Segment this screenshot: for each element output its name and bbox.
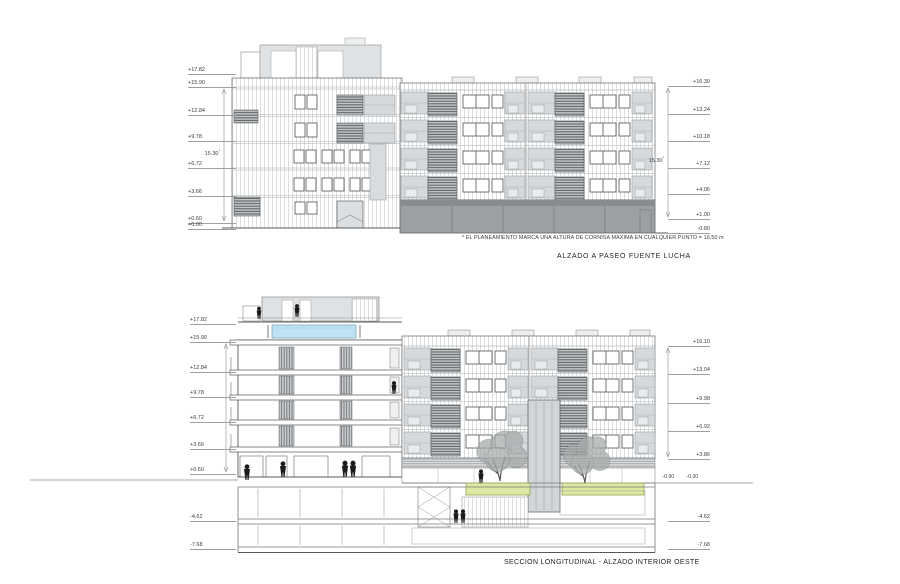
rooftop-pool xyxy=(272,325,356,338)
elevation-title: ALZADO A PASEO FUENTE LUCHA xyxy=(557,253,691,260)
green-roof-left xyxy=(466,483,530,495)
level-label: +9.78 xyxy=(190,390,236,398)
section-ground-label-right: -0.30 xyxy=(676,474,698,480)
section-levels-right: +16.10+13.04+9.98+6.92+3.86-4.62-7.68 xyxy=(668,0,710,584)
level-label: +3.86 xyxy=(668,452,710,460)
section-title: SECCION LONGITUDINAL - ALZADO INTERIOR O… xyxy=(504,559,700,566)
level-label: +15.90 xyxy=(190,335,236,343)
section-right-building xyxy=(402,330,655,527)
level-label: +16.10 xyxy=(668,339,710,347)
section-roof xyxy=(238,297,402,338)
planning-footnote: * EL PLANEAMIENTO MARCA UNA ALTURA DE CO… xyxy=(462,235,724,241)
elevation-roof-volumes xyxy=(241,38,381,78)
elevation-drawing xyxy=(222,38,670,233)
level-label: +6.92 xyxy=(668,424,710,432)
section-ground-label-left: -0.90 xyxy=(652,474,674,480)
garage-door xyxy=(337,201,363,228)
level-label: +0.60 xyxy=(190,467,236,475)
level-label: -7.68 xyxy=(190,542,236,550)
level-label: +13.04 xyxy=(668,367,710,375)
level-label: +9.98 xyxy=(668,396,710,404)
ground-floor-lobby xyxy=(240,456,390,477)
section-levels-left: +17.82+15.90+12.84+9.78+6.72+3.66+0.60-4… xyxy=(190,0,236,584)
level-label: +12.84 xyxy=(190,365,236,373)
level-label: -4.62 xyxy=(668,514,710,522)
level-label: +17.82 xyxy=(190,317,236,325)
parking-ramp xyxy=(418,487,450,527)
level-label: +6.72 xyxy=(190,415,236,423)
section-left-building xyxy=(230,340,404,477)
level-label: -7.68 xyxy=(668,542,710,550)
architectural-drawing-sheet: +17.82+15.90+12.84+9.78+6.72+3.66+0.60+0… xyxy=(0,0,900,584)
elevation-height-dim-right: 15.30* xyxy=(636,155,664,164)
green-roof-right xyxy=(562,483,644,495)
elevation-left-block xyxy=(222,78,402,228)
drawing-canvas xyxy=(0,0,900,584)
level-label: +3.66 xyxy=(190,442,236,450)
level-label: -4.62 xyxy=(190,514,236,522)
elevation-height-dim-left: 15.30* xyxy=(192,148,220,157)
section-drawing xyxy=(30,297,753,553)
elevation-right-block xyxy=(400,77,668,233)
